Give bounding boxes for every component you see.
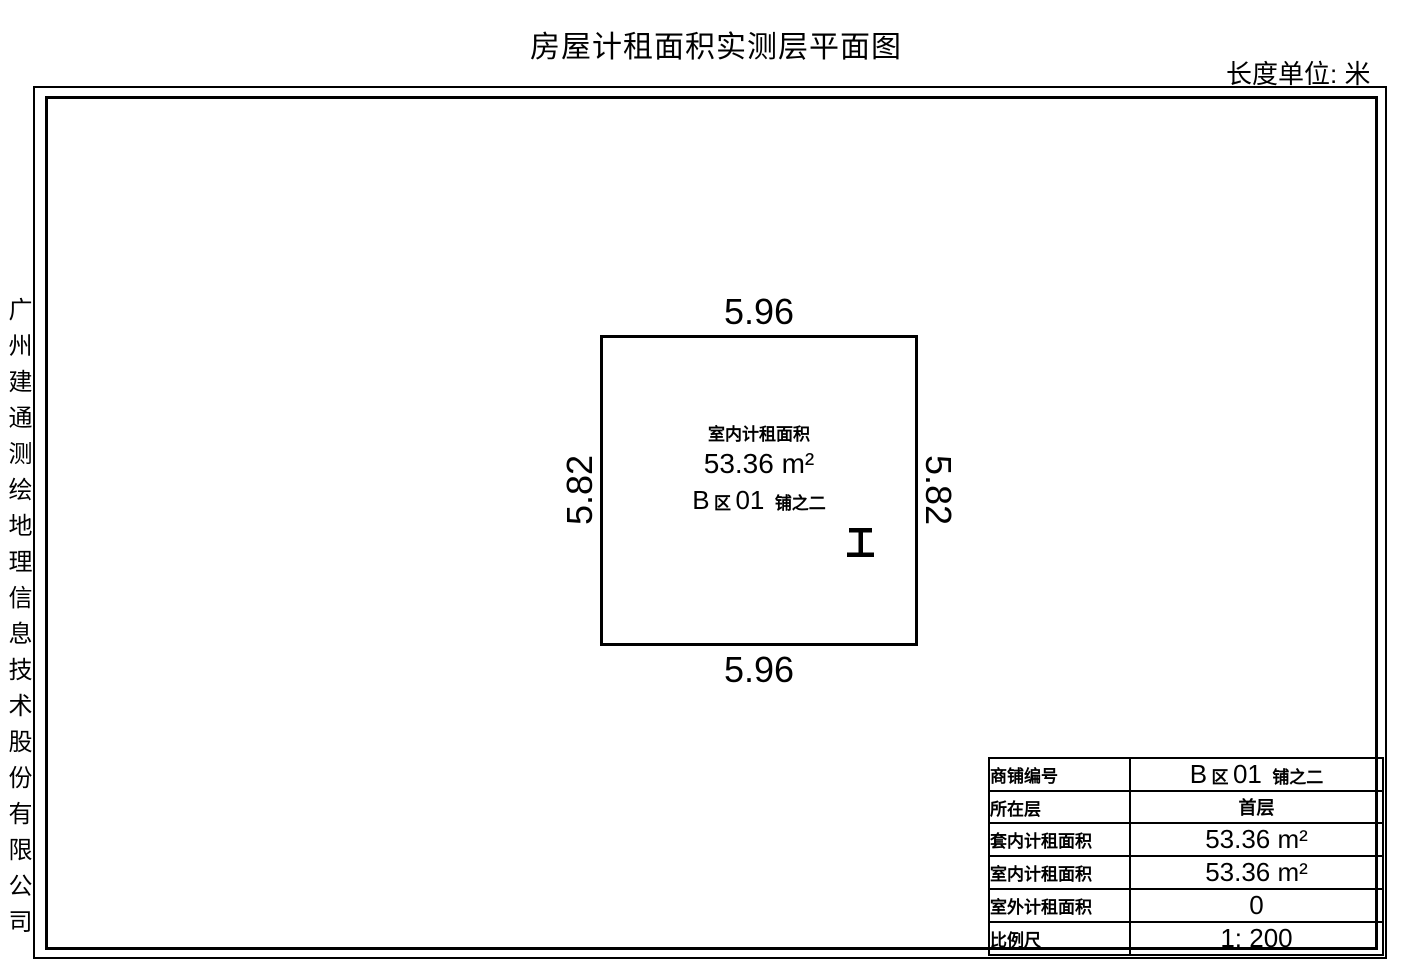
room-outline: 室内计租面积 53.36 m² B 区 01 铺之二 bbox=[600, 335, 918, 646]
shop-info-table: 商铺编号 B 区 01 铺之二 所在层 首层 套内计租面积 53.36 m² 室… bbox=[988, 757, 1384, 956]
shop-id-part-num: 01 bbox=[1233, 759, 1262, 789]
shop-id-part-b: B bbox=[692, 485, 709, 515]
row-label: 室外计租面积 bbox=[989, 889, 1130, 922]
table-row-indoor-rental-area: 室内计租面积 53.36 m² bbox=[989, 856, 1383, 889]
row-label: 比例尺 bbox=[989, 922, 1130, 955]
row-value: 53.36 m² bbox=[1130, 823, 1383, 856]
row-value: 0 bbox=[1130, 889, 1383, 922]
row-value: 首层 bbox=[1130, 791, 1383, 823]
shop-id-part-b: B bbox=[1190, 759, 1207, 789]
table-row-shop-number: 商铺编号 B 区 01 铺之二 bbox=[989, 758, 1383, 791]
table-row-floor: 所在层 首层 bbox=[989, 791, 1383, 823]
shop-id-part-suffix: 铺之二 bbox=[775, 494, 826, 513]
table-row-outdoor-rental-area: 室外计租面积 0 bbox=[989, 889, 1383, 922]
floor-plan-sheet: 房屋计租面积实测层平面图 长度单位: 米 广州建通测绘地理信息技术股份有限公司 … bbox=[0, 0, 1408, 966]
row-value: 1: 200 bbox=[1130, 922, 1383, 955]
room-shop-id: B 区 01 铺之二 bbox=[603, 485, 915, 516]
row-value: B 区 01 铺之二 bbox=[1130, 758, 1383, 791]
room-area-label: 室内计租面积 bbox=[603, 420, 915, 445]
table-row-unit-rental-area: 套内计租面积 53.36 m² bbox=[989, 823, 1383, 856]
row-label: 套内计租面积 bbox=[989, 823, 1130, 856]
row-label: 室内计租面积 bbox=[989, 856, 1130, 889]
company-name-vertical: 广州建通测绘地理信息技术股份有限公司 bbox=[5, 297, 29, 945]
row-value: 53.36 m² bbox=[1130, 856, 1383, 889]
steel-column-ibeam-icon bbox=[846, 528, 876, 559]
dimension-bottom: 5.96 bbox=[724, 652, 794, 688]
room-area-value: 53.36 m² bbox=[603, 448, 915, 480]
shop-id-part-suffix: 铺之二 bbox=[1272, 768, 1323, 787]
table-row-scale: 比例尺 1: 200 bbox=[989, 922, 1383, 955]
row-label: 所在层 bbox=[989, 791, 1130, 823]
shop-id-part-qu: 区 bbox=[714, 494, 731, 513]
drawing-title: 房屋计租面积实测层平面图 bbox=[530, 22, 902, 66]
dimension-left: 5.82 bbox=[562, 455, 598, 525]
dimension-top: 5.96 bbox=[724, 294, 794, 330]
shop-id-part-qu: 区 bbox=[1211, 768, 1228, 787]
dimension-right: 5.82 bbox=[920, 455, 956, 525]
row-label: 商铺编号 bbox=[989, 758, 1130, 791]
shop-id-part-num: 01 bbox=[735, 485, 764, 515]
